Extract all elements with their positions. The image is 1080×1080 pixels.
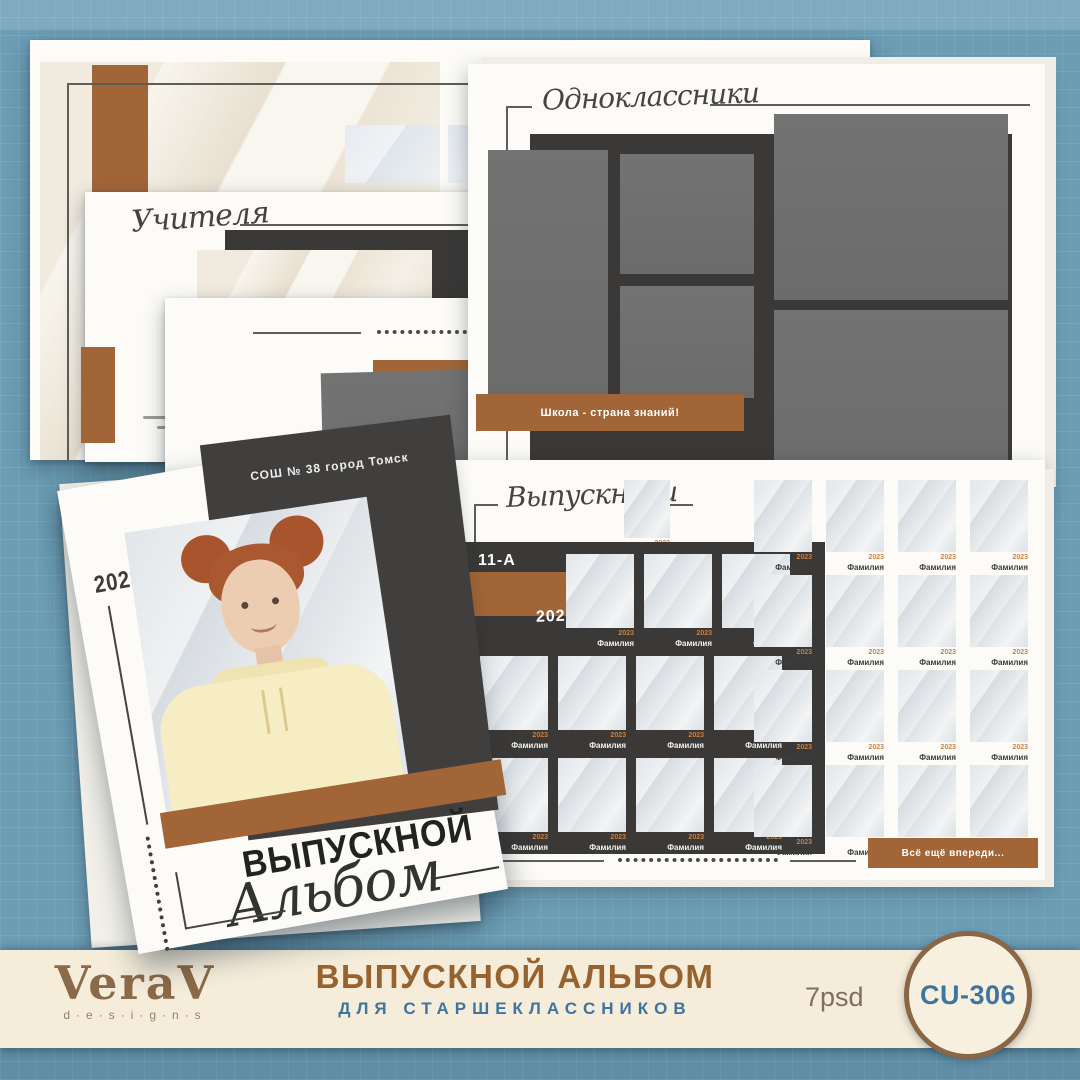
photo-placeholder bbox=[345, 125, 440, 183]
product-title-block: ВЫПУСКНОЙ АЛЬБОМ ДЛЯ СТАРШЕКЛАССНИКОВ bbox=[275, 958, 755, 1019]
photo-tile: 2023Фамилия bbox=[754, 575, 812, 668]
album-page-graduates: Выпускники 2023Фамилия 11-А 2023 2023Фам… bbox=[438, 460, 1045, 880]
photo-placeholder bbox=[754, 765, 812, 837]
photo-tile: 2023Фамилия bbox=[970, 575, 1028, 668]
photo-placeholder bbox=[970, 480, 1028, 552]
photo-placeholder bbox=[480, 656, 548, 730]
brown-accent-block bbox=[81, 347, 115, 443]
photo-tile: 2023Фамилия bbox=[898, 480, 956, 573]
photo-tile: 2023Фамилия bbox=[754, 765, 812, 858]
product-title: ВЫПУСКНОЙ АЛЬБОМ bbox=[275, 958, 755, 996]
photo-placeholder bbox=[566, 554, 634, 628]
graduates-grid-light-row: 2023Фамилия 2023Фамилия 2023Фамилия 2023… bbox=[754, 480, 1028, 573]
background-bottom-band bbox=[0, 1048, 1080, 1080]
photo-tile: 2023Фамилия bbox=[826, 575, 884, 668]
brand-name: VeraV bbox=[30, 960, 240, 1006]
page-title-classmates: Одноклассники bbox=[541, 76, 759, 117]
photo-placeholder bbox=[488, 150, 608, 394]
photo-placeholder bbox=[754, 575, 812, 647]
photo-placeholder bbox=[898, 480, 956, 552]
photo-placeholder bbox=[826, 480, 884, 552]
photo-placeholder bbox=[898, 575, 956, 647]
photo-placeholder bbox=[826, 575, 884, 647]
photo-tile: 2023Фамилия bbox=[898, 670, 956, 763]
photo-placeholder bbox=[754, 670, 812, 742]
product-code-badge: CU-306 bbox=[904, 931, 1032, 1059]
photo-placeholder bbox=[754, 480, 812, 552]
photo-placeholder bbox=[644, 554, 712, 628]
photo-tile: 2023Фамилия bbox=[480, 656, 548, 751]
photo-tile: 2023Фамилия bbox=[566, 554, 634, 649]
photo-placeholder bbox=[636, 758, 704, 832]
dotted-line bbox=[145, 836, 169, 951]
photo-tile: 2023Фамилия bbox=[826, 670, 884, 763]
photo-placeholder bbox=[970, 765, 1028, 837]
brand-subtitle: d·e·s·i·g·n·s bbox=[30, 1008, 240, 1022]
graduates-grid-light-row: 2023Фамилия 2023Фамилия 2023Фамилия 2023… bbox=[754, 670, 1028, 763]
photo-placeholder bbox=[774, 114, 1008, 300]
product-code: CU-306 bbox=[920, 980, 1016, 1011]
classmates-banner: Школа - страна знаний! bbox=[476, 394, 744, 431]
photo-tile: 2023Фамилия bbox=[558, 656, 626, 751]
class-label: 11-А bbox=[478, 552, 516, 570]
photo-tile: 2023Фамилия bbox=[826, 480, 884, 573]
photo-tile: 2023Фамилия bbox=[644, 554, 712, 649]
dotted-divider bbox=[618, 858, 778, 862]
graduates-banner: Всё ещё впереди... bbox=[868, 838, 1038, 868]
photo-tile: 2023Фамилия bbox=[558, 758, 626, 853]
photo-tile: 2023Фамилия bbox=[970, 480, 1028, 573]
graduates-grid-dark-row: 2023Фамилия 2023Фамилия 2023Фамилия 2023… bbox=[480, 758, 782, 853]
photo-tile: 2023Фамилия bbox=[636, 758, 704, 853]
product-subtitle: ДЛЯ СТАРШЕКЛАССНИКОВ bbox=[275, 999, 755, 1019]
product-mockup-image: Выпускник Учителя Одноклассники Школа - … bbox=[0, 0, 1080, 1080]
photo-placeholder bbox=[624, 480, 670, 538]
photo-placeholder bbox=[558, 758, 626, 832]
photo-placeholder bbox=[558, 656, 626, 730]
photo-tile: 2023Фамилия bbox=[898, 575, 956, 668]
photo-tile: 2023Фамилия bbox=[754, 480, 812, 573]
photo-placeholder bbox=[898, 670, 956, 742]
photo-tile: 2023Фамилия bbox=[754, 670, 812, 763]
album-cover: СОШ № 38 город Томск 2023 ВЫПУСКНОЙ Альб… bbox=[57, 426, 508, 954]
photo-tile: 2023Фамилия bbox=[636, 656, 704, 751]
photo-placeholder bbox=[636, 656, 704, 730]
graduates-grid-dark-row: 2023Фамилия 2023Фамилия 2023Фамилия 2023… bbox=[480, 656, 782, 751]
photo-tile: 2023Фамилия bbox=[970, 670, 1028, 763]
photo-placeholder bbox=[970, 670, 1028, 742]
brand-logo: VeraV d·e·s·i·g·n·s bbox=[30, 960, 240, 1022]
background-top-band bbox=[0, 0, 1080, 30]
photo-placeholder bbox=[620, 286, 754, 398]
school-name: СОШ № 38 город Томск bbox=[203, 444, 455, 489]
photo-placeholder bbox=[826, 765, 884, 837]
photo-placeholder bbox=[898, 765, 956, 837]
photo-placeholder bbox=[826, 670, 884, 742]
photo-placeholder bbox=[970, 575, 1028, 647]
graduates-grid-light-row: 2023Фамилия 2023Фамилия 2023Фамилия 2023… bbox=[754, 575, 1028, 668]
file-format: 7psd bbox=[805, 982, 864, 1013]
album-page-classmates: Одноклассники Школа - страна знаний! bbox=[468, 64, 1045, 496]
photo-placeholder bbox=[620, 154, 754, 274]
